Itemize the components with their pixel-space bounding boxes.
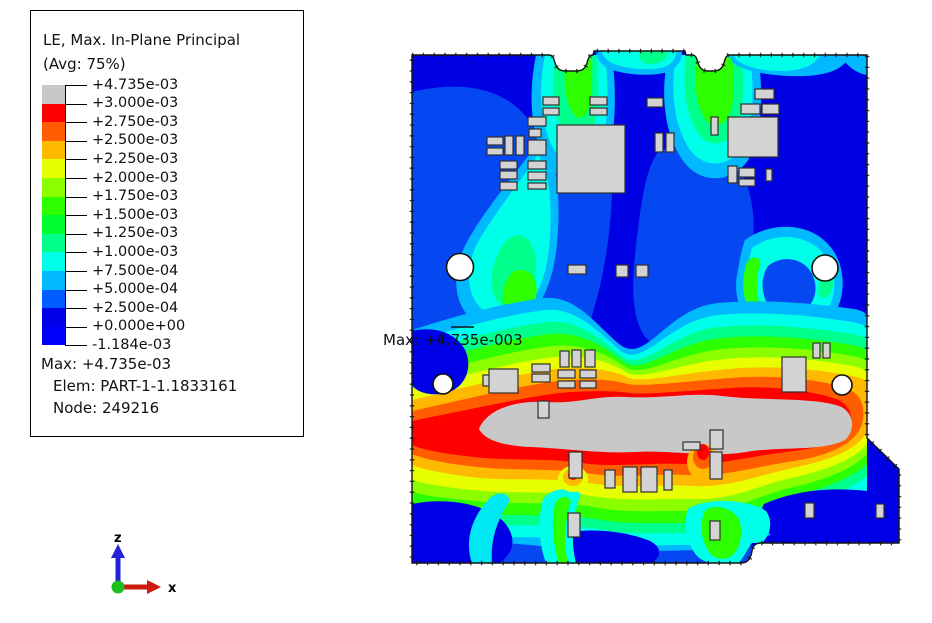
pcb-component	[580, 381, 596, 388]
pcb-component	[500, 182, 517, 190]
pcb-component	[557, 125, 625, 193]
mounting-hole	[433, 374, 453, 394]
pcb-component	[710, 452, 722, 479]
pcb-component	[532, 374, 550, 382]
pcb-component	[710, 430, 723, 449]
pcb-component	[813, 343, 820, 358]
pcb-component	[823, 343, 830, 358]
z-axis-label: z	[114, 531, 122, 546]
pcb-component	[605, 470, 615, 488]
pcb-component	[528, 117, 546, 126]
pcb-component	[558, 370, 575, 378]
pcb-component	[762, 104, 779, 114]
pcb-component	[741, 104, 760, 114]
pcb-component	[529, 129, 541, 137]
pcb-component	[876, 504, 884, 518]
pcb-component	[585, 350, 595, 367]
pcb-component	[664, 470, 672, 490]
pcb-component	[532, 364, 550, 372]
pcb-component	[572, 350, 581, 367]
x-axis-arrowhead	[147, 580, 161, 594]
pcb-component	[755, 89, 774, 99]
origin-dot	[112, 581, 125, 594]
max-annotation: Max: +4.735e-003	[383, 331, 523, 349]
pcb-component	[489, 369, 518, 393]
pcb-component	[500, 171, 517, 179]
x-axis-label: x	[168, 581, 177, 596]
pcb-component	[568, 265, 586, 274]
pcb-component	[683, 442, 700, 450]
pcb-component	[543, 97, 559, 105]
pcb-component	[505, 136, 513, 155]
pcb-component	[569, 452, 582, 478]
pcb-component	[558, 381, 575, 388]
pcb-component	[710, 521, 720, 540]
pcb-component	[782, 357, 806, 392]
pcb-component	[616, 265, 628, 277]
pcb-component	[647, 98, 663, 107]
pcb-component	[500, 161, 517, 169]
pcb-component	[543, 108, 559, 115]
pcb-component	[516, 136, 524, 155]
mounting-hole	[832, 375, 852, 395]
abaqus-viewer-canvas[interactable]: LE, Max. In-Plane Principal (Avg: 75%) +…	[0, 0, 932, 623]
pcb-component	[623, 467, 637, 492]
pcb-component	[590, 108, 607, 115]
pcb-component	[766, 169, 772, 181]
pcb-component	[739, 168, 755, 177]
pcb-component	[666, 133, 674, 152]
pcb-component	[580, 370, 596, 378]
pcb-component	[487, 148, 503, 155]
pcb-component	[528, 161, 546, 169]
pcb-component	[805, 503, 814, 518]
mounting-hole	[447, 254, 474, 281]
z-axis-arrowhead	[111, 544, 125, 558]
pcb-component	[560, 351, 569, 367]
pcb-component	[728, 166, 737, 183]
pcb-component	[655, 133, 663, 152]
pcb-component	[487, 137, 503, 145]
pcb-component	[528, 183, 546, 189]
pcb-component	[711, 117, 718, 135]
pcb-component	[528, 172, 546, 180]
pcb-component	[728, 117, 778, 157]
axis-triad: z x	[75, 512, 205, 612]
mounting-hole	[812, 255, 838, 281]
pcb-component	[590, 97, 607, 105]
pcb-component	[528, 140, 546, 155]
pcb-component	[739, 179, 755, 186]
pcb-component	[538, 401, 549, 418]
pcb-component	[568, 513, 580, 537]
pcb-component	[641, 467, 657, 492]
pcb-component	[636, 265, 648, 277]
